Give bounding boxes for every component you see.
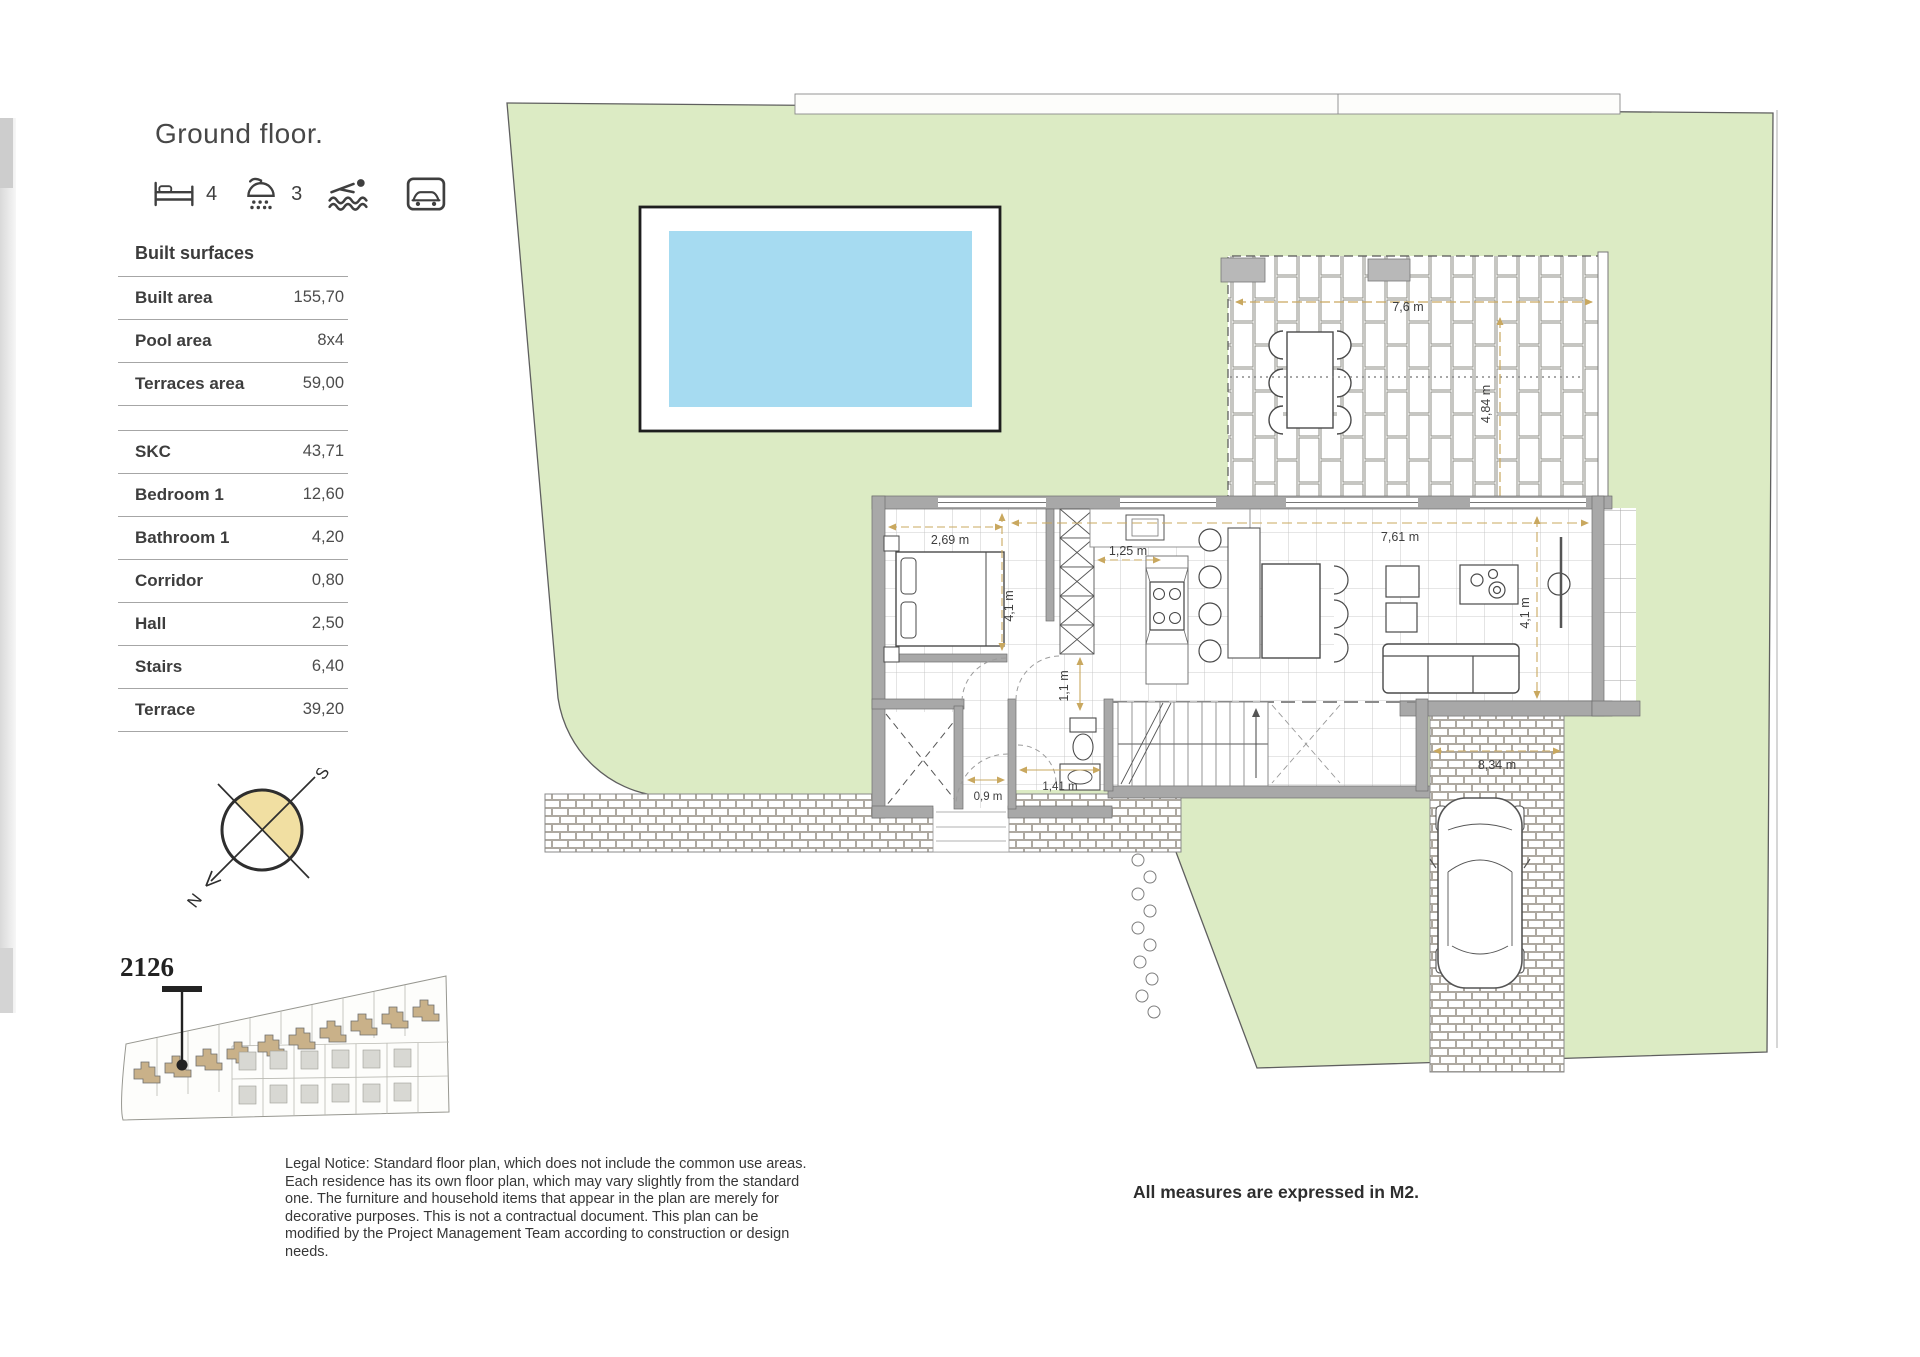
pool <box>640 207 1000 431</box>
swimming-pool-icon <box>326 177 370 211</box>
car <box>1430 798 1530 988</box>
row-value: 4,20 <box>312 528 344 548</box>
built-surfaces-table: Built area 155,70 Pool area 8x4 Terraces… <box>118 276 348 732</box>
row-label: Hall <box>135 614 166 634</box>
dining-table <box>1262 564 1348 662</box>
dim-hall-width: 0,9 m <box>974 791 1003 803</box>
row-value: 59,00 <box>303 374 344 394</box>
compass-north-label: N <box>183 890 206 911</box>
row-value: 0,80 <box>312 571 344 591</box>
row-value: 8x4 <box>317 331 344 351</box>
shower-icon <box>241 176 281 212</box>
bed <box>896 552 1004 646</box>
table-row: Stairs 6,40 <box>118 645 348 688</box>
bathrooms-count: 3 <box>291 183 302 206</box>
row-value: 39,20 <box>303 700 344 720</box>
stepping-stones <box>1132 854 1160 1018</box>
nightstand <box>884 647 899 662</box>
side-table <box>1386 603 1417 632</box>
bed-icon <box>152 178 196 210</box>
unit-number: 2126 <box>120 952 174 982</box>
table-row: Bedroom 1 12,60 <box>118 473 348 516</box>
row-label: Corridor <box>135 571 203 591</box>
dim-terrace-width: 7,6 m <box>1392 300 1423 314</box>
table-row: Terrace 39,20 <box>118 688 348 731</box>
table-row: Terraces area 59,00 <box>118 362 348 405</box>
row-value: 155,70 <box>294 288 344 308</box>
measures-note: All measures are expressed in M2. <box>1133 1182 1419 1203</box>
couch <box>1383 644 1519 693</box>
dim-bedroom-width: 2,69 m <box>931 533 969 547</box>
row-value: 43,71 <box>303 442 344 462</box>
garden-walkway <box>545 794 1181 852</box>
driveway: 8,34 m <box>1430 716 1564 1072</box>
feature-icons: 4 3 <box>152 176 446 212</box>
outdoor-dining-table <box>1269 331 1351 434</box>
stairs <box>1118 702 1268 786</box>
table-row: Bathroom 1 4,20 <box>118 516 348 559</box>
site-plan: 2126 <box>112 946 460 1136</box>
dim-living-depth: 4,1 m <box>1518 597 1532 628</box>
row-label: Terrace <box>135 700 195 720</box>
compass-icon: N S <box>165 768 340 943</box>
row-label: Bedroom 1 <box>135 485 224 505</box>
bedrooms-count: 4 <box>206 183 217 206</box>
scan-artifact <box>0 948 13 1013</box>
table-row: SKC 43,71 <box>118 430 348 473</box>
legal-notice: Legal Notice: Standard floor plan, which… <box>285 1156 809 1261</box>
row-value: 6,40 <box>312 657 344 677</box>
row-value: 12,60 <box>303 485 344 505</box>
scan-artifact <box>0 118 13 188</box>
floor-plan: 7,6 m 4,84 m <box>495 85 1785 1085</box>
nightstand <box>884 536 899 551</box>
row-label: Bathroom 1 <box>135 528 229 548</box>
table-row: Built area 155,70 <box>118 276 348 319</box>
dim-bedroom-depth: 4,1 m <box>1002 590 1016 621</box>
row-label: Pool area <box>135 331 212 351</box>
page-title: Ground floor. <box>155 118 323 150</box>
dim-kitchen-width: 1,25 m <box>1109 544 1147 558</box>
table-row: Hall 2,50 <box>118 602 348 645</box>
row-label: Built area <box>135 288 212 308</box>
round-table <box>1548 573 1570 595</box>
kitchen-island <box>1228 528 1260 658</box>
garage-icon <box>406 177 446 211</box>
row-label: Stairs <box>135 657 182 677</box>
table-row: Corridor 0,80 <box>118 559 348 602</box>
brochure-page: Ground floor. 4 3 <box>0 0 1920 1357</box>
dim-driveway-length: 8,34 m <box>1478 758 1516 772</box>
table-row: Pool area 8x4 <box>118 319 348 362</box>
upper-terrace: 7,6 m 4,84 m <box>1221 252 1608 508</box>
scan-edge-shadow <box>0 118 16 1013</box>
dim-bathroom-width: 1,41 m <box>1042 781 1077 793</box>
patio-void <box>884 712 962 808</box>
dim-corridor-width: 1,1 m <box>1057 670 1071 701</box>
rooms-table: SKC 43,71 Bedroom 1 12,60 Bathroom 1 4,2… <box>118 430 348 732</box>
compass-south-label: S <box>311 768 333 783</box>
row-label: Terraces area <box>135 374 244 394</box>
neighbor-strip <box>795 94 1620 114</box>
dim-living-width: 7,61 m <box>1381 530 1419 544</box>
built-surfaces-heading: Built surfaces <box>135 243 254 264</box>
summary-table: Built area 155,70 Pool area 8x4 Terraces… <box>118 276 348 406</box>
dim-terrace-depth: 4,84 m <box>1479 385 1493 423</box>
sink-unit <box>1460 565 1518 604</box>
side-terrace <box>1604 508 1636 714</box>
side-table <box>1386 566 1419 597</box>
row-value: 2,50 <box>312 614 344 634</box>
row-label: SKC <box>135 442 171 462</box>
closet <box>1060 509 1094 654</box>
